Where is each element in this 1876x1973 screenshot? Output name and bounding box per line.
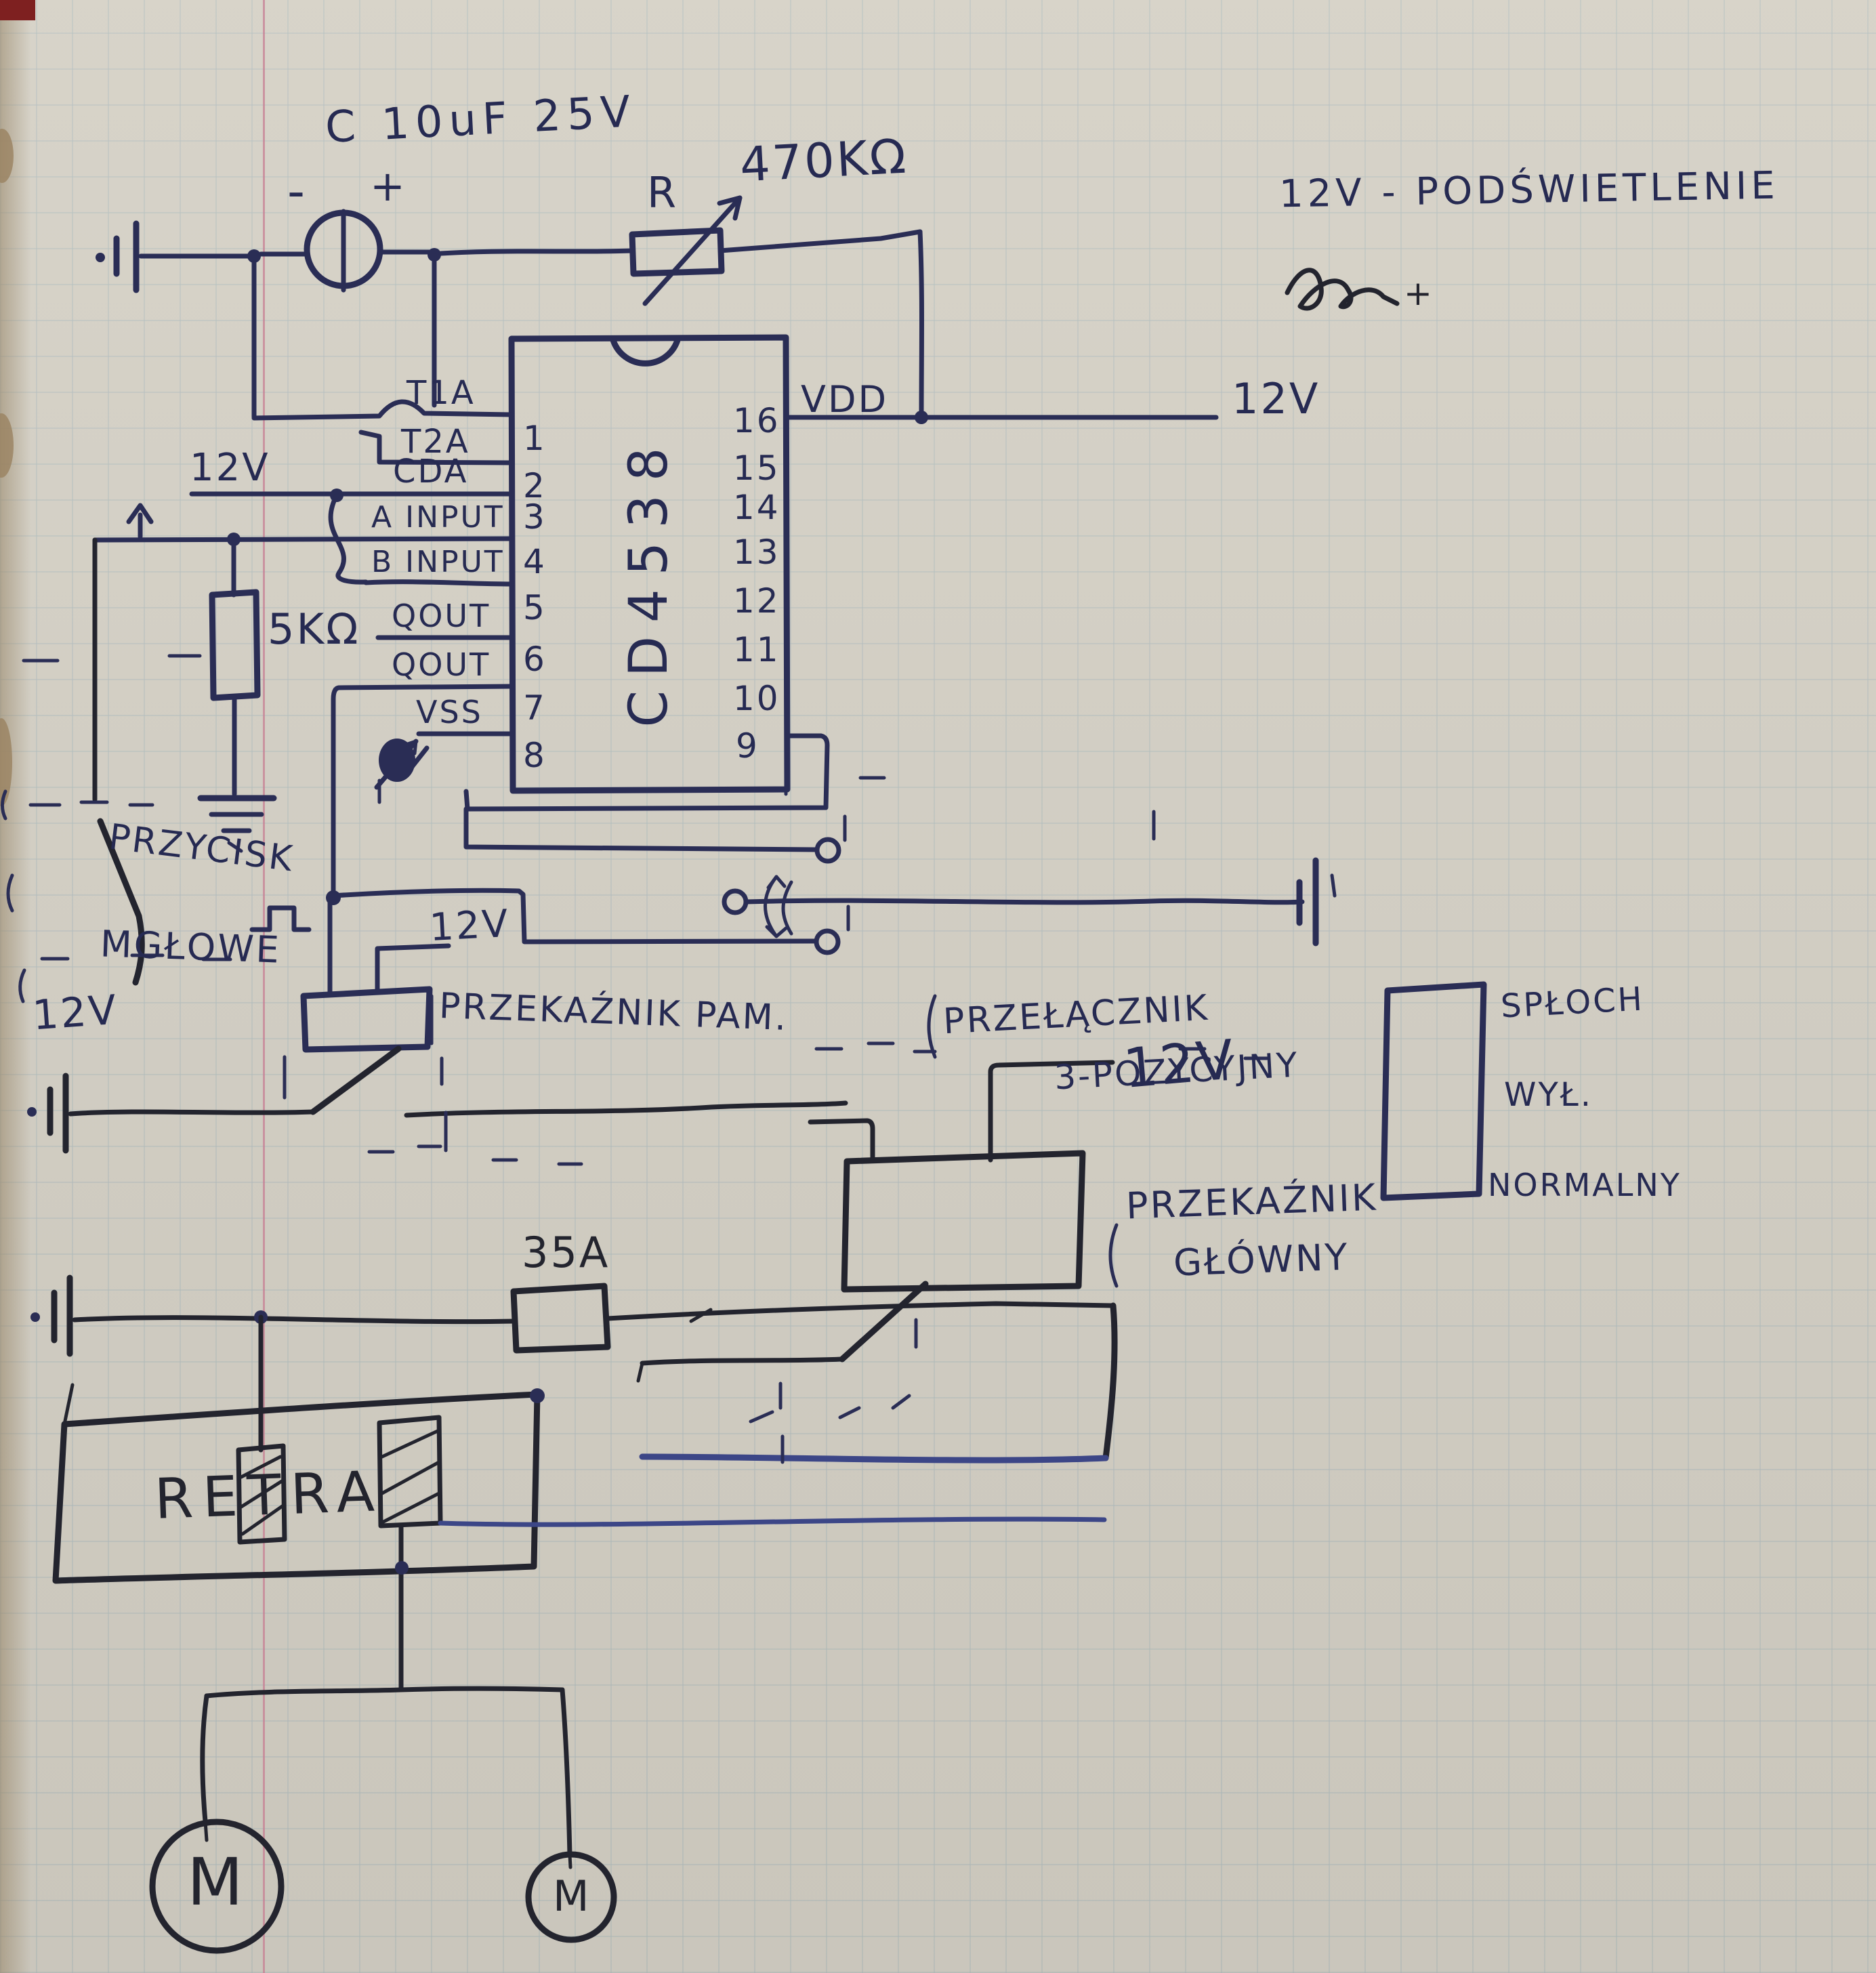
backlight-note: 12V - PODŚWIETLENIE [1278,164,1779,217]
switch-main-line [27,1049,846,1150]
glowny-relay-label-1: PRZEKAŹNIK [1125,1176,1378,1228]
pin-label-t1a: T1A [407,374,476,412]
pin-num-9: 9 [736,726,759,766]
pin-num-14: 14 [733,488,780,527]
pin-num-4: 4 [523,542,547,581]
resistor-5k-label: 5KΩ [268,604,360,654]
pin-label-qout6: QOUT [392,598,491,634]
wire-cap-to-pot [428,248,632,262]
fuse-box-35a [514,1286,1113,1350]
arrow-up-icon [129,505,151,537]
pam-12v-label: 12V [428,902,511,950]
pot-value-label: 470KΩ [738,129,909,193]
pin-label-b-input: B INPUT [371,545,505,579]
switch-3pos-contacts [724,839,1302,953]
sploch-label-3: NORMALNY [1488,1167,1682,1203]
motor-feed-wires [203,1688,570,1855]
glowny-relay-label-2: GŁÓWNY [1173,1235,1350,1284]
rail-12v-vdd-label: 12V [1232,374,1320,423]
pin-num-10: 10 [733,679,780,718]
capacitor-plus-sign: + [370,161,407,211]
pin-num-8: 8 [523,736,547,775]
graph-paper-sheet: C 10uF 25V - + R 470KΩ 12V - PODŚWIETLEN… [0,0,1876,1973]
switch-przycisk [95,540,142,982]
bottom-left-12v-label: 12V [31,986,120,1040]
vss-ground-blob [377,739,427,787]
rail-12v-cda-label: 12V [190,446,270,490]
pin-num-5: 5 [523,588,547,627]
note-plus-sign: + [1404,274,1434,313]
pulse-icon [252,908,309,930]
motor-1-label: M [187,1844,245,1920]
resistor-5k-symbol [212,540,257,794]
pin-num-7: 7 [523,688,547,728]
pin-label-a-input: A INPUT [371,500,505,535]
ic-name-label: CD4538 [619,425,680,736]
vdd-label: VDD [801,378,888,421]
sploch-label-1: SPŁOCH [1500,980,1645,1025]
pin-num-12: 12 [733,581,780,621]
terminal-symbol-top-left [96,224,251,290]
pushbutton-sploch [1383,984,1484,1198]
pin-label-cda: CDA [393,453,468,491]
przycisk-label-2: MGŁOWE [100,922,282,971]
retra-label: RETRA [153,1459,385,1532]
motor-2-label: M [553,1871,591,1921]
pot-ref-label: R [647,168,678,217]
pin-label-qout7: QOUT [392,646,491,683]
terminal-symbol-bottom [30,1278,514,1354]
sploch-label-2: WYŁ. [1504,1076,1593,1114]
scribble-mark [1287,270,1397,308]
pin-num-11: 11 [733,630,780,669]
pin-num-15: 15 [733,449,780,488]
pin-label-vss: VSS [416,694,483,730]
capacitor-symbol [247,211,430,290]
pin-num-3: 3 [523,497,547,537]
glowny-12v-label: 12V [1121,1028,1238,1100]
retra-coil-right [379,1417,440,1526]
pin-num-16: 16 [733,401,780,440]
terminal-symbol-right [1299,860,1335,943]
pin-num-1: 1 [523,419,547,458]
capacitor-minus-sign: - [287,163,307,220]
pin-num-6: 6 [523,640,547,679]
fuse-35a-label: 35A [522,1228,610,1277]
pin-num-13: 13 [733,533,780,572]
